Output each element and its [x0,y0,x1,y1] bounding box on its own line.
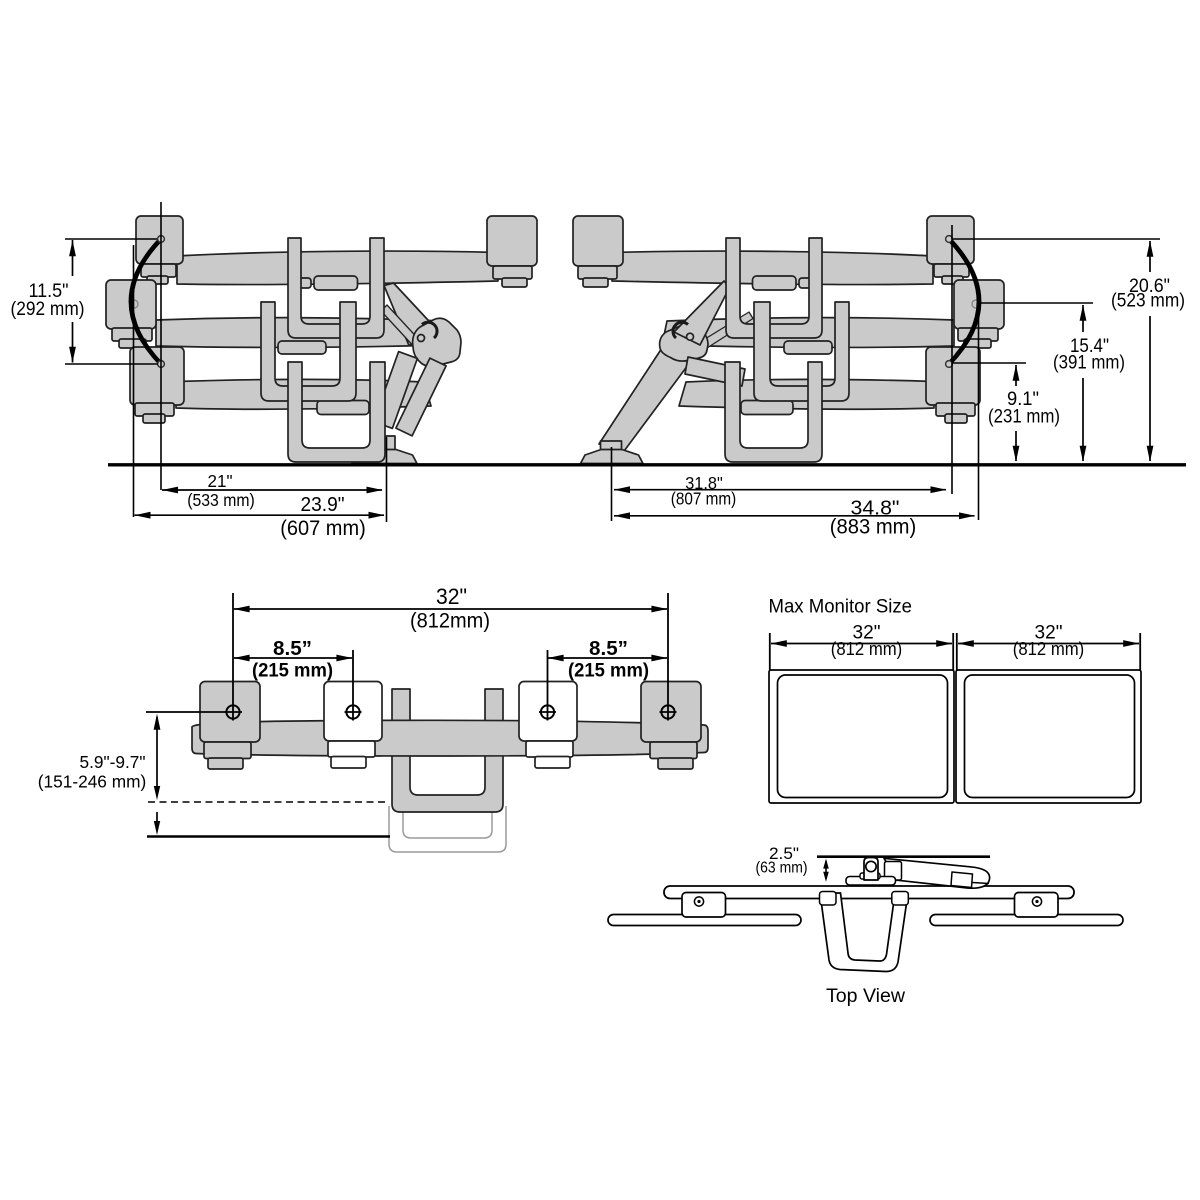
svg-text:(391 mm): (391 mm) [1053,353,1125,374]
svg-text:32": 32" [436,584,467,609]
svg-text:(883 mm): (883 mm) [830,516,917,539]
svg-text:Max Monitor Size: Max Monitor Size [769,597,913,618]
svg-text:(523 mm): (523 mm) [1111,291,1185,312]
svg-text:23.9": 23.9" [301,494,345,516]
svg-text:5.9"-9.7": 5.9"-9.7" [80,752,146,772]
svg-text:(812 mm): (812 mm) [831,639,903,659]
svg-text:(215 mm): (215 mm) [252,661,333,682]
svg-text:8.5”: 8.5” [273,638,312,660]
svg-text:(812 mm): (812 mm) [1013,639,1085,659]
svg-text:21": 21" [208,471,233,491]
svg-text:(807 mm): (807 mm) [671,489,737,509]
svg-text:(215 mm): (215 mm) [568,661,649,682]
svg-text:(231 mm): (231 mm) [988,407,1060,428]
svg-text:8.5”: 8.5” [589,638,628,660]
svg-text:Top View: Top View [826,985,906,1007]
svg-text:(151-246 mm): (151-246 mm) [38,772,147,792]
svg-text:(292 mm): (292 mm) [11,299,85,320]
svg-text:(607 mm): (607 mm) [280,517,366,540]
svg-text:(63 mm): (63 mm) [756,860,808,877]
svg-text:(812mm): (812mm) [410,610,490,633]
svg-text:(533 mm): (533 mm) [187,490,255,510]
